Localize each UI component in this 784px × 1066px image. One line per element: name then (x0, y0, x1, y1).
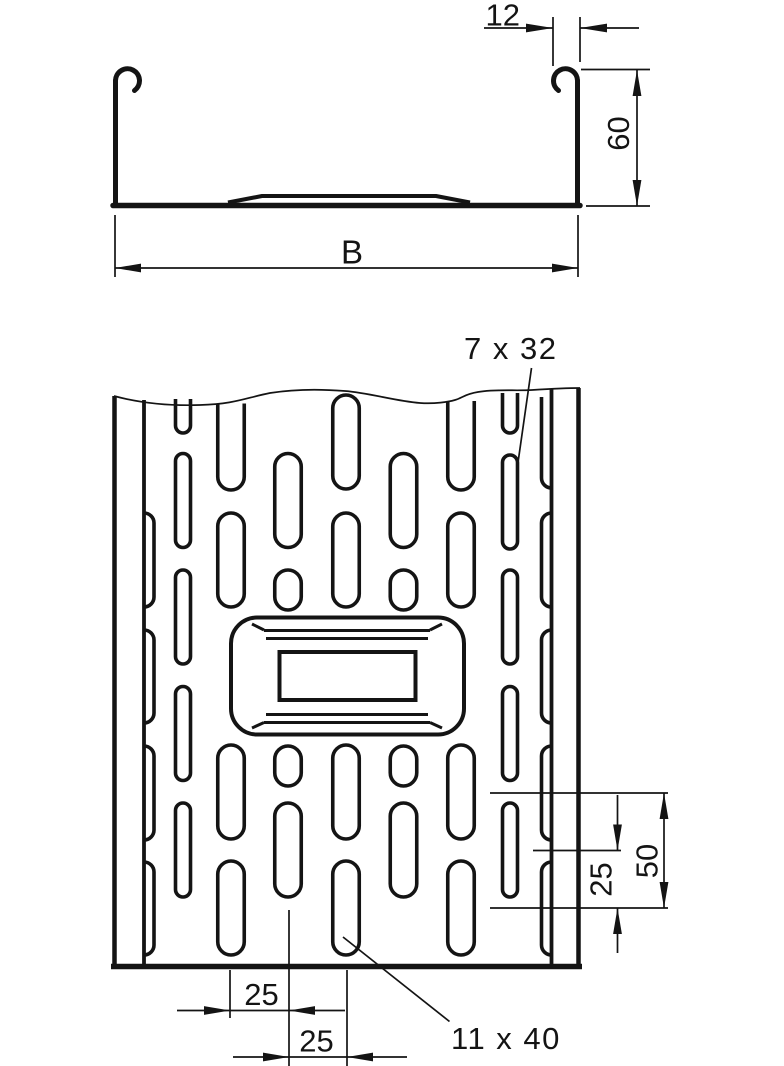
slot-hole (390, 803, 417, 897)
cable-tray-technical-drawing: 12 60 B (0, 0, 784, 1066)
arrowhead (289, 1006, 315, 1015)
right-hook-curl (554, 69, 578, 91)
arrowhead (347, 1053, 373, 1062)
oval-hole (275, 746, 302, 786)
slot-hole-partial (176, 399, 191, 433)
slot-hole (448, 513, 475, 607)
label-7x32: 7 x 32 (464, 331, 557, 366)
plan-view: 7 x 32 50 25 25 25 11 x 40 (111, 331, 668, 1066)
arrowhead (263, 1053, 289, 1062)
oval-hole (390, 746, 417, 786)
arrowhead (660, 882, 669, 908)
dim-60-label: 60 (601, 116, 636, 150)
left-hook-curl (116, 69, 140, 91)
slot-hole (503, 455, 518, 549)
slot-hole (218, 513, 245, 607)
embossment-outline (231, 618, 464, 735)
slot-hole (176, 687, 191, 781)
perforation-holes (144, 393, 552, 955)
slot-hole (503, 687, 518, 781)
label-11x40: 11 x 40 (451, 1021, 561, 1056)
dimension-arrows (115, 24, 641, 273)
emboss-line (430, 624, 442, 630)
bottom-rib (228, 196, 470, 203)
slot-hole-partial (448, 401, 475, 490)
slot-hole (275, 454, 302, 548)
slot-hole (218, 745, 245, 839)
arrowhead (660, 793, 669, 819)
slot-hole-partial (218, 404, 245, 491)
emboss-line (252, 723, 264, 729)
slot-hole (176, 454, 191, 548)
arrowhead (613, 908, 622, 934)
arrowhead (204, 1006, 230, 1015)
arrowhead (580, 24, 607, 33)
tray-profile (113, 69, 580, 206)
leader-line-11x40 (343, 937, 450, 1022)
leader-line-7x32 (518, 368, 532, 466)
slot-hole (218, 861, 245, 955)
dim-25-second-label: 25 (299, 1024, 333, 1059)
arrowhead (633, 70, 642, 96)
oval-hole (275, 570, 302, 610)
dim-50-label: 50 (630, 844, 665, 878)
arrowhead (633, 180, 642, 206)
center-embossment (231, 618, 464, 735)
arrowhead (552, 264, 578, 273)
slot-hole (448, 745, 475, 839)
cross-section-view: 12 60 B (113, 0, 650, 277)
slot-hole (333, 513, 360, 607)
emboss-line (430, 723, 442, 729)
plan-dimension-lines (177, 368, 668, 1066)
slot-hole (503, 570, 518, 664)
slot-hole (176, 570, 191, 664)
dim-b-label: B (341, 234, 363, 271)
slot-hole-partial (503, 393, 518, 433)
dim-25-right-label: 25 (584, 862, 619, 896)
slot-hole (503, 803, 518, 897)
arrowhead (613, 825, 622, 851)
embossment-window (280, 652, 416, 700)
plate-edges (111, 388, 582, 967)
slot-hole (333, 745, 360, 839)
emboss-line (252, 624, 264, 630)
slot-hole (275, 803, 302, 897)
slot-hole (176, 803, 191, 897)
arrowhead (526, 24, 553, 33)
drawing-canvas: 12 60 B (0, 0, 784, 1066)
dim-25-first-label: 25 (244, 977, 278, 1012)
slot-hole (448, 861, 475, 955)
arrowhead (115, 264, 141, 273)
dim-12-label: 12 (486, 0, 520, 33)
slot-hole (390, 454, 417, 548)
slot-hole (333, 861, 360, 955)
dimension-lines (115, 17, 650, 277)
slot-hole (333, 395, 360, 489)
oval-hole (390, 570, 417, 610)
